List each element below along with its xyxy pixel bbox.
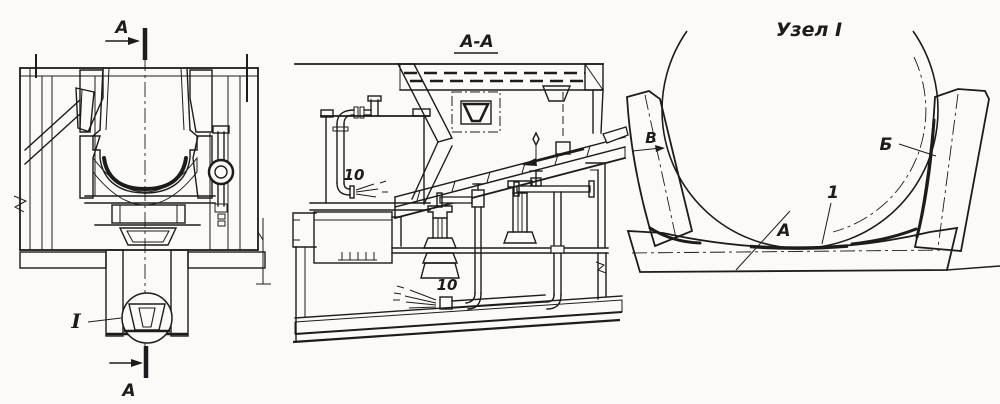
- detail-callout-label: I: [70, 309, 81, 333]
- pipe-label-lower: 10: [437, 276, 458, 294]
- figure-canvas: А: [0, 0, 1000, 404]
- gap-label: В: [645, 129, 656, 147]
- section-label-a-top: А: [113, 18, 128, 38]
- section-title: А-А: [454, 32, 498, 53]
- technical-drawing: А: [0, 0, 1000, 404]
- liner-label: Б: [880, 135, 893, 155]
- pipe-label-upper: 10: [344, 166, 365, 184]
- shell-number-label: 1: [827, 183, 839, 203]
- detail-title-label: Узел I: [776, 19, 842, 41]
- pipe-flange-icon: [209, 160, 233, 184]
- section-title-label: А-А: [458, 32, 493, 52]
- section-label-a-bottom: А: [120, 381, 135, 401]
